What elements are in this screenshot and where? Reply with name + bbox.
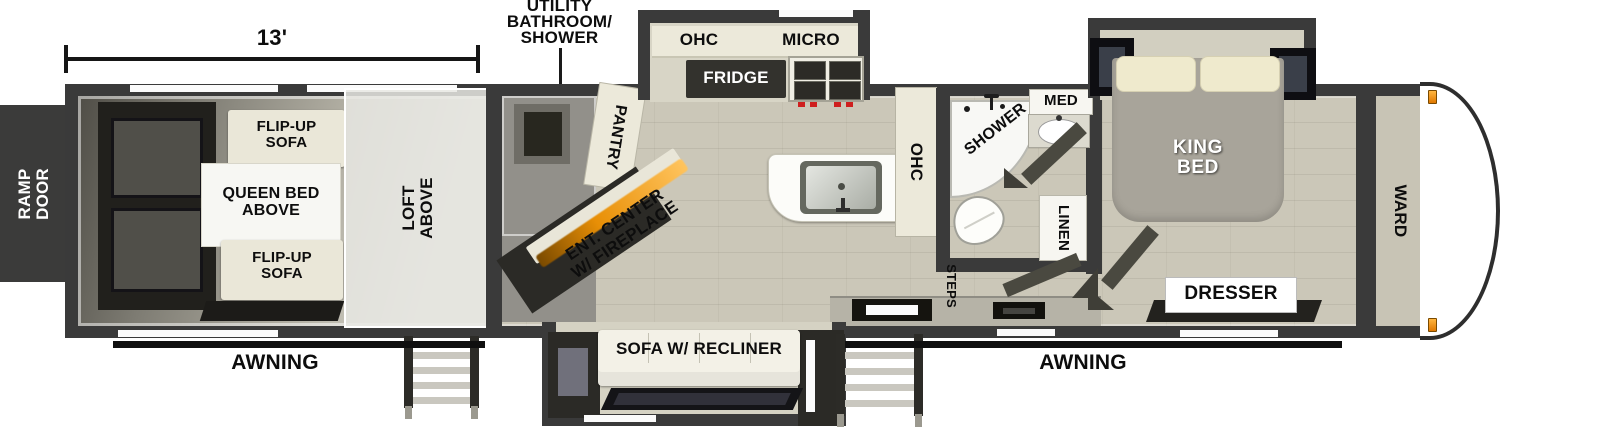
ladder-step bbox=[845, 400, 914, 407]
dimension-tick-left bbox=[64, 45, 68, 73]
ladder-step bbox=[413, 382, 470, 389]
ladder-step bbox=[413, 397, 470, 404]
marker-light-icon bbox=[1428, 318, 1437, 332]
window-strip bbox=[130, 85, 278, 92]
utility-shower-pan bbox=[514, 104, 570, 164]
kitchen-ohc-cabinet: OHC MICRO bbox=[652, 26, 858, 58]
window-strip bbox=[779, 10, 853, 17]
shower-dot-icon bbox=[964, 106, 970, 112]
queen-bed-line1: QUEEN BED bbox=[202, 186, 340, 203]
garage-floor-mat bbox=[200, 301, 344, 321]
dresser-label: DRESSER bbox=[1166, 278, 1296, 304]
ramp-door-line1: RAMP bbox=[16, 168, 34, 220]
garage-window bbox=[111, 118, 203, 198]
entry-door-threshold bbox=[866, 305, 918, 315]
stove-knob bbox=[846, 102, 853, 107]
steps-label-box: STEPS bbox=[941, 266, 961, 306]
med-cabinet: MED bbox=[1030, 90, 1092, 114]
queen-bed-line2: ABOVE bbox=[202, 203, 340, 220]
stove bbox=[788, 56, 864, 102]
loft-line2: ABOVE bbox=[418, 177, 436, 238]
sofa-label: SOFA W/ RECLINER bbox=[598, 340, 800, 358]
ohc-counter: OHC bbox=[896, 88, 936, 236]
wardrobe: WARD bbox=[1376, 96, 1424, 326]
step-well bbox=[993, 302, 1045, 319]
flip-up-sofa-bottom-label: FLIP-UP SOFA bbox=[221, 240, 343, 282]
bathroom-wall-left bbox=[936, 88, 950, 272]
ohc-counter-label: OHC bbox=[907, 143, 925, 181]
wardrobe-label: WARD bbox=[1391, 185, 1409, 238]
flip-up-sofa-top-line2: SOFA bbox=[228, 135, 345, 151]
entry-door-mat bbox=[852, 299, 932, 321]
queen-bed-above: QUEEN BED ABOVE bbox=[202, 164, 340, 246]
stove-knob bbox=[834, 102, 841, 107]
king-bed-line2: BED bbox=[1112, 158, 1284, 178]
flip-up-sofa-top: FLIP-UP SOFA bbox=[228, 110, 345, 167]
garage-divider-wall bbox=[486, 88, 502, 328]
pillow bbox=[1200, 56, 1280, 92]
loft-above-overlay: LOFT ABOVE bbox=[344, 88, 491, 328]
flip-up-sofa-bottom: FLIP-UP SOFA bbox=[221, 240, 343, 300]
queen-bed-above-label: QUEEN BED ABOVE bbox=[202, 164, 340, 220]
pantry-label: PANTRY bbox=[602, 103, 629, 170]
flip-up-sofa-bottom-line2: SOFA bbox=[221, 266, 343, 282]
floor-mat-inner bbox=[613, 393, 791, 405]
burner-icon bbox=[794, 61, 826, 80]
fridge-label: FRIDGE bbox=[686, 60, 786, 87]
toilet-seat-line bbox=[964, 212, 995, 230]
ladder-step bbox=[413, 367, 470, 374]
flip-up-sofa-top-label: FLIP-UP SOFA bbox=[228, 110, 345, 151]
linen-label: LINEN bbox=[1055, 205, 1071, 251]
dresser: DRESSER bbox=[1166, 278, 1296, 312]
king-bed-label: KING BED bbox=[1112, 138, 1284, 178]
window-strip bbox=[1180, 330, 1278, 337]
dimension-line bbox=[66, 57, 478, 61]
steps-label: STEPS bbox=[944, 264, 958, 308]
shower-head-icon bbox=[984, 94, 999, 98]
dimension-label: 13' bbox=[66, 26, 478, 49]
awning-label-left: AWNING bbox=[180, 352, 370, 374]
front-cap bbox=[1420, 82, 1500, 340]
window-strip bbox=[584, 415, 656, 422]
loft-line1: LOFT bbox=[400, 177, 418, 238]
sink-drain-icon bbox=[838, 183, 845, 190]
ladder-rail bbox=[836, 334, 845, 416]
sink-faucet-icon bbox=[836, 208, 850, 212]
garage-window bbox=[111, 208, 203, 292]
awning-line-right bbox=[845, 341, 1342, 348]
ladder-step bbox=[413, 352, 470, 359]
awning-line-left bbox=[113, 341, 485, 348]
slide-window-pane bbox=[558, 348, 588, 396]
awning-label-right: AWNING bbox=[988, 352, 1178, 374]
window-strip bbox=[118, 330, 278, 337]
ramp-door-label: RAMP DOOR bbox=[16, 168, 52, 220]
slideout-end-cap bbox=[548, 332, 600, 418]
burner-icon bbox=[829, 81, 861, 100]
step-well-inner bbox=[1003, 308, 1035, 314]
burner-icon bbox=[794, 81, 826, 100]
bathroom-faucet-icon bbox=[1056, 115, 1062, 121]
utility-shower-pan-inner bbox=[524, 112, 562, 156]
ramp-door-panel bbox=[98, 102, 216, 310]
pillow bbox=[1116, 56, 1196, 92]
stove-knob bbox=[810, 102, 817, 107]
entry-steps-right bbox=[836, 334, 928, 429]
marker-light-icon bbox=[1428, 90, 1437, 104]
ladder-step bbox=[845, 384, 914, 391]
dimension-tick-right bbox=[476, 45, 480, 73]
loft-above-label: LOFT ABOVE bbox=[400, 177, 436, 238]
fridge: FRIDGE bbox=[686, 60, 786, 98]
ramp-door-line2: DOOR bbox=[34, 168, 52, 220]
ladder-step bbox=[845, 368, 914, 375]
window-strip bbox=[997, 329, 1055, 336]
ladder-foot bbox=[471, 406, 478, 419]
micro-label: MICRO bbox=[768, 31, 854, 49]
burner-icon bbox=[829, 61, 861, 80]
linen-cabinet: LINEN bbox=[1040, 196, 1086, 260]
bedroom-wall-right bbox=[1356, 84, 1376, 338]
shower-dot-icon bbox=[1000, 104, 1005, 109]
entry-steps-left bbox=[404, 336, 484, 421]
stove-knob bbox=[798, 102, 805, 107]
flip-up-sofa-top-line1: FLIP-UP bbox=[228, 119, 345, 135]
ladder-foot bbox=[915, 414, 922, 427]
kitchen-ohc-label: OHC bbox=[664, 31, 734, 49]
ladder-foot bbox=[837, 414, 844, 427]
med-label: MED bbox=[1030, 90, 1092, 109]
king-bed-line1: KING bbox=[1112, 138, 1284, 158]
shower-head-icon bbox=[990, 96, 993, 110]
floor-mat bbox=[601, 388, 803, 410]
ramp-door: RAMP DOOR bbox=[0, 105, 68, 282]
floorplan: 13' UTILITY BATHROOM/ SHOWER RAMP DOOR F… bbox=[0, 0, 1600, 429]
ladder-step bbox=[845, 352, 914, 359]
slide-window-pane bbox=[806, 340, 815, 412]
flip-up-sofa-bottom-line1: FLIP-UP bbox=[221, 250, 343, 266]
ladder-foot bbox=[405, 406, 412, 419]
